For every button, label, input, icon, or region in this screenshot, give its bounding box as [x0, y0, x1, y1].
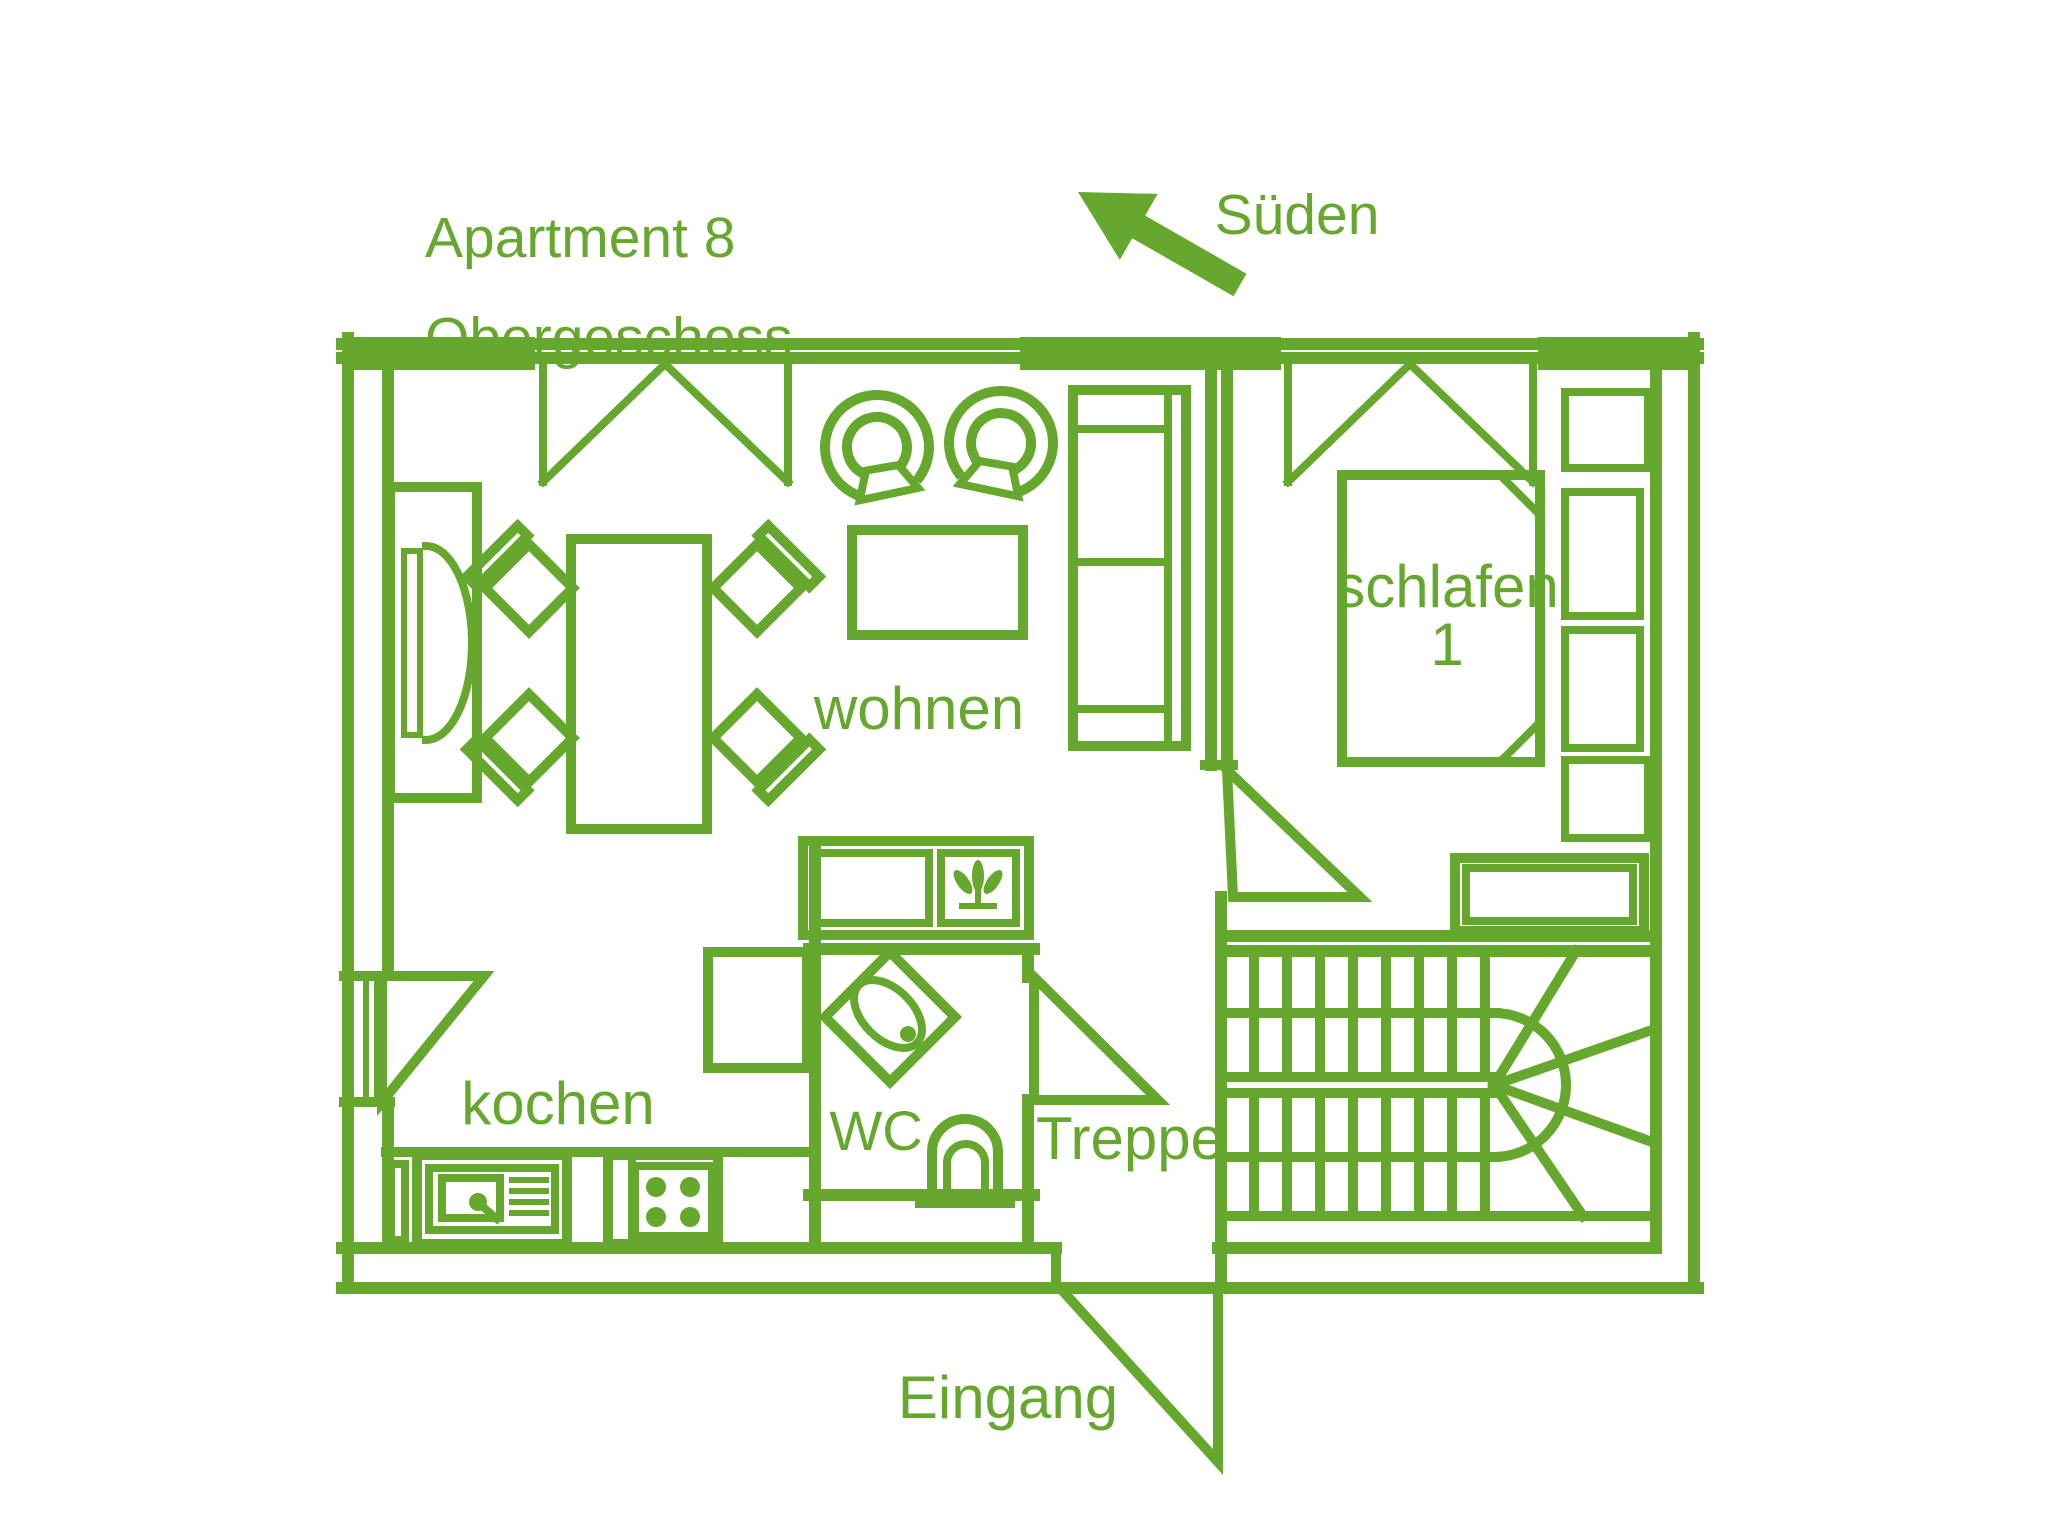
page-title-line1: Apartment 8 [425, 206, 736, 270]
room-label-kitchen: kochen [461, 1070, 654, 1137]
room-label-living: wohnen [813, 675, 1024, 742]
room-label-bedroom-number: 1 [1430, 611, 1463, 678]
wall-block [1538, 337, 1698, 370]
window-casement-bedroom [1288, 364, 1533, 482]
burner-icon [680, 1177, 700, 1197]
dresser [1455, 858, 1644, 931]
shelf-cabinet [803, 841, 1029, 935]
dining-chair [710, 526, 820, 636]
compass-label: Süden [1215, 183, 1380, 247]
compass: Süden [1078, 183, 1379, 296]
room-label-wc: WC [829, 1099, 922, 1162]
window-casement-living [543, 364, 788, 482]
stove-unit [608, 1155, 718, 1244]
furniture-bedroom [1342, 392, 1648, 931]
coffee-table [852, 530, 1023, 635]
burner-icon [646, 1177, 666, 1197]
page-title-line2: Obergeschoss [425, 306, 793, 370]
sofa [1073, 390, 1186, 746]
tall-cabinet [708, 952, 807, 1068]
room-label-stairs: Treppe [1036, 1105, 1224, 1172]
burner-icon [680, 1207, 700, 1227]
floor-plan-drawing: Süden Apartment 8 Obergeschoss wohnen sc… [0, 0, 2048, 1538]
staircase [1227, 951, 1656, 1216]
washbasin [825, 952, 955, 1082]
dining-table [571, 539, 707, 829]
dining-chair [467, 526, 577, 636]
armchair [949, 391, 1053, 496]
plant-icon [950, 860, 1006, 906]
burner-icon [646, 1207, 666, 1227]
room-label-bedroom: schlafen [1335, 553, 1558, 620]
closet-shelves [1565, 392, 1648, 838]
dining-chair [710, 691, 820, 801]
counter-end-panel [391, 1164, 405, 1240]
armchair [825, 395, 929, 500]
sink-unit [417, 1155, 567, 1244]
floor-plan-page: Süden Apartment 8 Obergeschoss wohnen sc… [0, 0, 2048, 1538]
room-label-entrance: Eingang [898, 1364, 1118, 1431]
door-swing-wc [1034, 977, 1158, 1100]
door-swing-bedroom [1227, 770, 1360, 897]
wall-block [1020, 337, 1281, 370]
dining-chair [467, 691, 577, 801]
